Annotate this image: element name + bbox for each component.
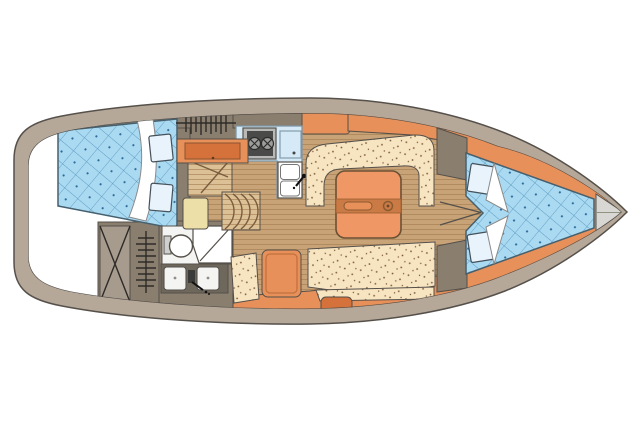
aft-berth-pillow-2 bbox=[149, 183, 173, 212]
galley-faucet-dot bbox=[293, 187, 295, 189]
head-sink-right-drain bbox=[207, 277, 210, 280]
aft-cabin-cabinet-inner bbox=[185, 143, 240, 159]
boat-floor-plan bbox=[0, 0, 640, 426]
saloon-table-hinge bbox=[344, 202, 372, 210]
aft-cabin-cabinet-handle bbox=[212, 157, 215, 160]
head-faucet bbox=[188, 270, 195, 283]
saloon-side-cushion bbox=[231, 253, 259, 303]
galley-sink-2 bbox=[281, 181, 300, 196]
aft-berth-pillow-1 bbox=[149, 134, 174, 162]
galley-icebox bbox=[280, 131, 301, 158]
head-toilet bbox=[170, 235, 193, 257]
floor-plan-svg bbox=[0, 0, 640, 426]
saloon-seat bbox=[262, 250, 301, 297]
head-faucet-dot-1 bbox=[205, 291, 208, 294]
head-sink-left-drain bbox=[174, 277, 177, 280]
head-faucet-dot-2 bbox=[208, 293, 210, 295]
saloon-settee-bottom bbox=[308, 242, 435, 290]
nav-seat bbox=[183, 198, 208, 229]
forward-bulkhead-bottom bbox=[437, 240, 467, 292]
galley-icebox-latch bbox=[293, 152, 296, 155]
saloon-table-ring-dot bbox=[387, 205, 390, 208]
galley-sink-1 bbox=[281, 165, 300, 180]
